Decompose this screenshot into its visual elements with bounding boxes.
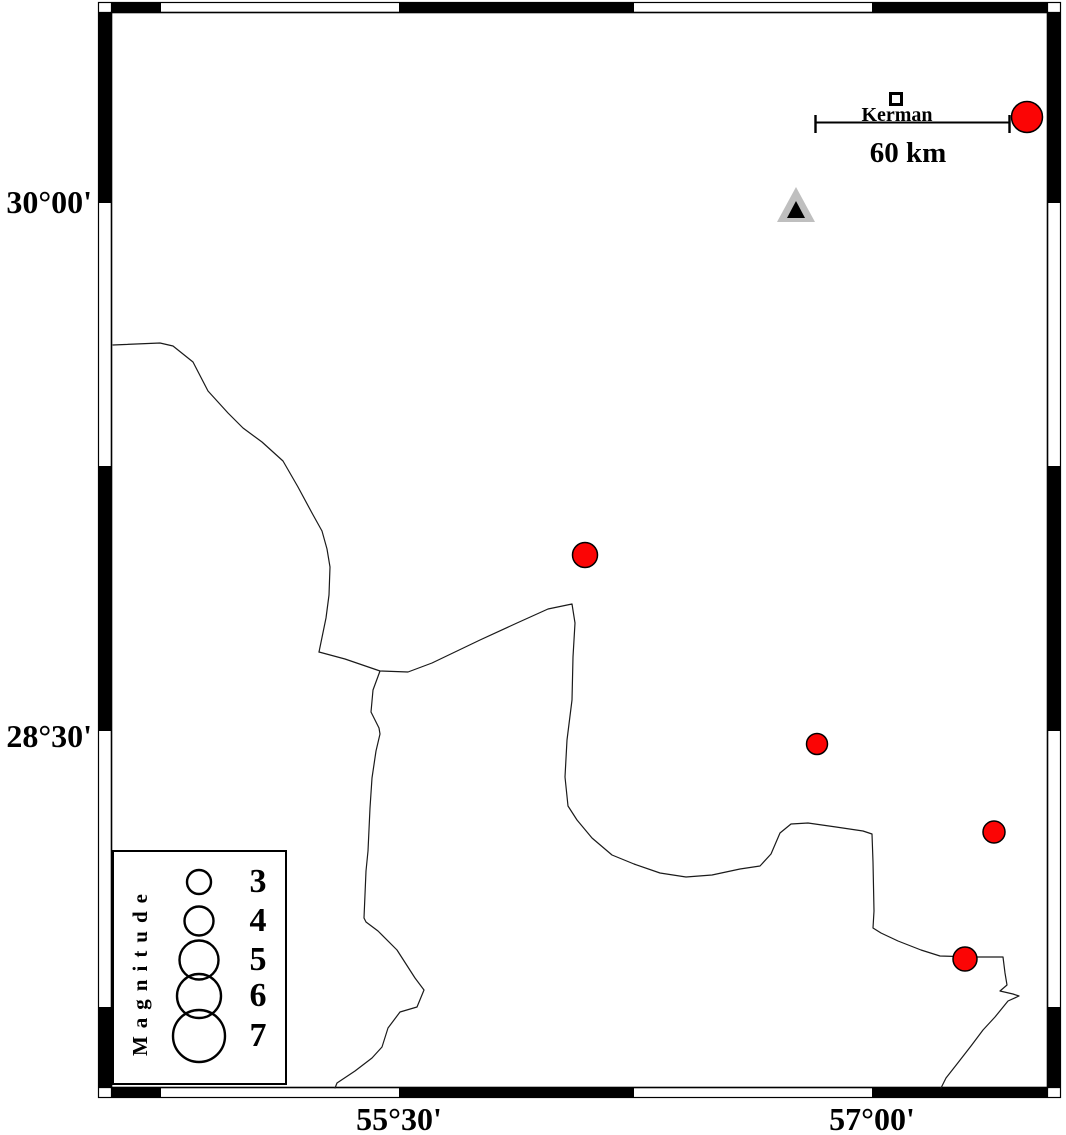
frame-segment: [112, 1088, 161, 1098]
lat-label-30-00: 30°00': [2, 182, 92, 222]
lon-label-55-30: 55°30': [329, 1099, 469, 1135]
lat-label-28-30: 28°30': [2, 716, 92, 756]
legend-title: Magnitude: [125, 861, 155, 1081]
earthquake-marker: [573, 543, 598, 568]
lon-label-57-00: 57°00': [802, 1099, 942, 1135]
frame-segment: [99, 1007, 112, 1087]
city-name-label: Kerman: [837, 102, 957, 128]
legend-value-5: 5: [218, 940, 298, 980]
frame-segment: [399, 3, 634, 13]
legend-value-3: 3: [218, 862, 298, 902]
scale-bar-label: 60 km: [838, 134, 978, 172]
station-marker-layer: [777, 187, 815, 222]
seismicity-map-page: 30°00' 28°30' 55°30' 57°00' Kerman 60 km…: [0, 0, 1066, 1135]
legend-value-7: 7: [218, 1016, 298, 1056]
frame-segment: [99, 466, 112, 731]
frame-segment: [1048, 1007, 1061, 1087]
earthquake-marker: [1012, 102, 1043, 133]
frame-segment: [1048, 13, 1061, 203]
legend-circle-3: [187, 870, 211, 894]
earthquake-marker: [953, 947, 977, 971]
earthquake-marker: [807, 734, 828, 755]
legend-value-6: 6: [218, 976, 298, 1016]
frame-segment: [399, 1088, 634, 1098]
boundary-line-central: [319, 604, 1019, 1088]
earthquake-layer: [573, 102, 1043, 972]
earthquake-marker: [983, 821, 1005, 843]
frame-segment: [872, 1088, 1047, 1098]
frame-segment: [1048, 466, 1061, 731]
boundary-line-northwest: [113, 343, 330, 652]
frame-segment: [99, 13, 112, 203]
magnitude-legend: Magnitude 3 4 5 6 7: [112, 850, 287, 1085]
legend-circle-4: [185, 907, 214, 936]
boundary-line-south: [335, 671, 424, 1088]
frame-segment: [872, 3, 1047, 13]
legend-value-4: 4: [218, 901, 298, 941]
frame-segment: [112, 3, 161, 13]
